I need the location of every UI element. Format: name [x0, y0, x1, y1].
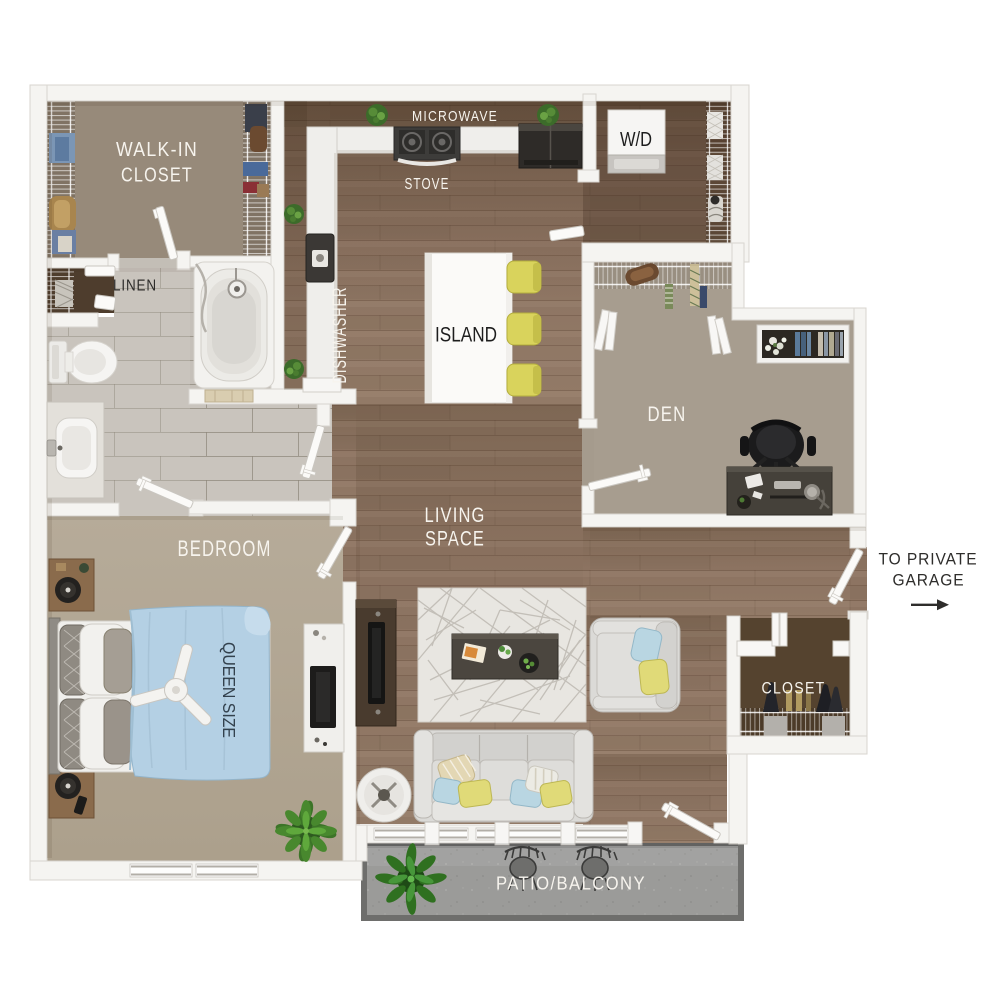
svg-text:ISLAND: ISLAND: [435, 323, 497, 347]
svg-text:LIVING: LIVING: [425, 503, 486, 527]
svg-text:GARAGE: GARAGE: [893, 571, 965, 590]
svg-text:TO PRIVATE: TO PRIVATE: [879, 550, 978, 569]
svg-text:QUEEN SIZE: QUEEN SIZE: [219, 642, 239, 738]
svg-text:WALK-IN: WALK-IN: [116, 138, 198, 161]
svg-text:MICROWAVE: MICROWAVE: [412, 108, 498, 125]
svg-text:DEN: DEN: [648, 402, 687, 426]
svg-text:CLOSET: CLOSET: [762, 679, 826, 698]
svg-text:PATIO/BALCONY: PATIO/BALCONY: [496, 874, 646, 894]
svg-text:SPACE: SPACE: [425, 527, 485, 551]
svg-text:BEDROOM: BEDROOM: [178, 536, 272, 561]
svg-text:W/D: W/D: [620, 129, 652, 151]
svg-text:STOVE: STOVE: [405, 176, 450, 193]
svg-text:DISHWASHER: DISHWASHER: [330, 287, 351, 384]
svg-text:CLOSET: CLOSET: [121, 164, 193, 187]
svg-text:LINEN: LINEN: [113, 278, 157, 295]
